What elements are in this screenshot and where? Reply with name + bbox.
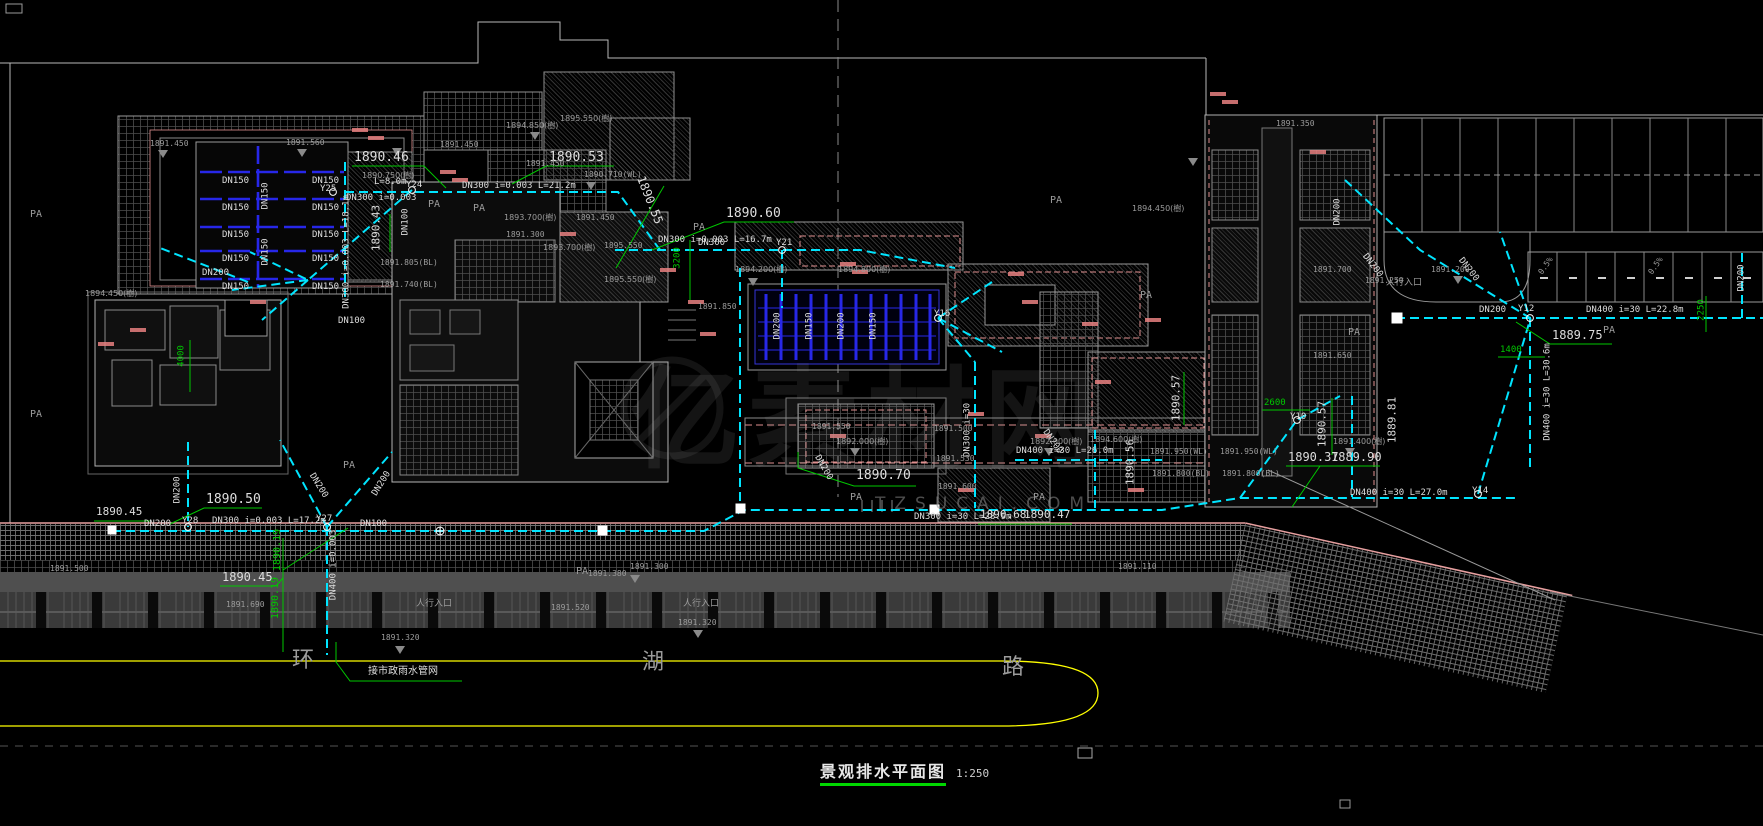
pipe-label: DN150: [222, 204, 249, 213]
watermark-site-text: TZSUCAI.COM: [875, 494, 1093, 514]
elevation-label: 1891.800(BL): [1222, 470, 1280, 478]
pipe-label: DN150: [312, 177, 339, 186]
annotation-label: PA: [428, 200, 440, 210]
elevation-label: 1889.90: [1331, 451, 1382, 463]
elevation-label: 1890.45: [222, 571, 273, 583]
dimension-label: 2250: [1698, 299, 1707, 321]
pipe-label: DN100: [360, 520, 387, 529]
elevation-label: 1891.450: [440, 141, 479, 149]
annotation-label: PA: [850, 493, 862, 503]
elevation-label: 1893.700(樹): [543, 244, 595, 252]
elevation-label: 1891.110: [1118, 563, 1157, 571]
elevation-label: 1895.550: [604, 242, 643, 250]
elevation-label: 1891.200: [1431, 266, 1470, 274]
elevation-label: 1890.43: [371, 205, 382, 251]
elevation-label: 1891.740(BL): [380, 281, 438, 289]
elevation-label: 1890.750(樹): [362, 172, 414, 180]
annotation-label: PA: [30, 210, 42, 220]
annotation-label: 人行入口: [1386, 279, 1422, 288]
pipe-label: DN200: [307, 472, 329, 500]
pipe-label: DN150: [222, 255, 249, 264]
node-label: Y24: [406, 181, 422, 190]
pipe-label: DN150: [262, 182, 271, 209]
pipe-label: DN150: [222, 283, 249, 292]
annotation-label: PA: [30, 410, 42, 420]
elevation-label: 1891.450: [576, 214, 615, 222]
elevation-label: 1890.46: [354, 151, 409, 164]
drawing-title: 景观排水平面图: [820, 762, 946, 786]
elevation-label: 1890.50: [206, 493, 261, 506]
elevation-label: 1890.19: [273, 529, 283, 571]
elevation-label: 1891.320: [678, 619, 717, 627]
pipe-label: DN300 i=0.003 L=18.1m: [343, 195, 352, 309]
node-label: Y21: [776, 239, 792, 248]
pipe-label: DN200: [174, 476, 183, 503]
pipe-label: DN200: [202, 269, 229, 278]
elevation-label: 1890.56: [1125, 439, 1136, 485]
elevation-label: 1890.60: [726, 207, 781, 220]
annotation-label: PA: [693, 223, 705, 233]
drawing-title-block: 景观排水平面图1:250: [820, 758, 989, 782]
annotation-label: PA: [1050, 196, 1062, 206]
annotation-label: 人行入口: [416, 600, 452, 609]
annotation-label: PA: [1140, 291, 1152, 301]
annotation-label: 接市政雨水管网: [368, 667, 438, 677]
dimension-label: 3200: [674, 247, 683, 269]
pipe-label: DN200: [1479, 306, 1506, 315]
dimension-label: 1400: [1500, 346, 1522, 355]
pipe-label: DN150: [312, 231, 339, 240]
elevation-label: 1894.850(樹): [506, 122, 558, 130]
elevation-label: 1889.81: [1387, 397, 1398, 443]
elevation-label: 1891.800(BL): [1152, 470, 1210, 478]
slope-label: 0.5%: [1537, 256, 1555, 276]
pipe-label: DN200: [1738, 264, 1747, 291]
pipe-label: DN300 i=0.003 L=17.2m: [212, 517, 326, 526]
elevation-label: 1891.850: [698, 303, 737, 311]
dimension-label: 4000: [178, 345, 187, 367]
pipe-label: DN300 i=0.003 L=21.2m: [462, 182, 576, 191]
pipe-label: DN400 i=30 L=22.8m: [1586, 306, 1684, 315]
drawing-scale: 1:250: [956, 767, 989, 780]
elevation-label: 1889.75: [1552, 329, 1603, 341]
pipe-label: DN300 i=0.003: [346, 194, 416, 203]
pipe-label: DN150: [222, 177, 249, 186]
pipe-label: DN150: [222, 231, 249, 240]
elevation-label: 1894.450(樹): [1132, 205, 1184, 213]
pipe-label: DN400 i=0.003: [330, 530, 339, 600]
elevation-label: 1891.450: [526, 160, 565, 168]
pipe-label: DN150: [262, 238, 271, 265]
elevation-label: 1890.45: [96, 506, 142, 517]
elevation-label: 1891.300: [630, 563, 669, 571]
elevation-label: 1891.805(BL): [380, 259, 438, 267]
pipe-label: DN100: [402, 208, 411, 235]
elevation-label: 1890.19: [271, 577, 281, 619]
elevation-label: 1891.400(樹): [1333, 438, 1385, 446]
elevation-label: 1891.950(WL): [1220, 448, 1278, 456]
pipe-label: DN150: [312, 255, 339, 264]
node-label: Y25: [320, 185, 336, 194]
pipe-label: DN200: [144, 520, 171, 529]
annotation-label: PA: [576, 567, 588, 577]
elevation-label: 1891.320: [381, 634, 420, 642]
node-label: Y27: [316, 515, 332, 524]
pipe-label: DN300: [698, 239, 725, 248]
pipe-label: DN150: [312, 204, 339, 213]
elevation-label: 1891.650: [1313, 352, 1352, 360]
elevation-label: 1894.200(樹): [735, 266, 787, 274]
elevation-label: 1893.700(樹): [504, 214, 556, 222]
annotation-label: 环: [292, 650, 314, 672]
watermark-logo-text: 亿素材网: [630, 330, 1102, 490]
pipe-label: DN200: [371, 470, 393, 498]
elevation-label: 1890.57: [1317, 401, 1328, 447]
elevation-label: 1891.300: [506, 231, 545, 239]
annotation-label: PA: [1348, 328, 1360, 338]
dimension-label: 2600: [1264, 399, 1286, 408]
pipe-label: DN100: [338, 317, 365, 326]
elevation-label: 1891.560: [286, 139, 325, 147]
annotation-label: PA: [1603, 326, 1615, 336]
node-label: Y14: [1472, 487, 1488, 496]
annotation-label: 路: [1002, 657, 1024, 679]
elevation-label: 1895.550(樹): [604, 276, 656, 284]
node-label: Y10: [1290, 413, 1306, 422]
elevation-label: 1891.500: [50, 565, 89, 573]
annotation-label: PA: [343, 461, 355, 471]
elevation-label: 1894.800(樹): [838, 266, 890, 274]
elevation-label: 1895.550(樹): [560, 115, 612, 123]
cad-drawing-viewport[interactable]: DN300 i=0.003 L=21.2mDN300 i=0.003 L=16.…: [0, 0, 1763, 826]
elevation-label: 1890.710(WL): [584, 171, 642, 179]
elevation-label: 1890.55: [635, 174, 665, 225]
elevation-label: 1891.380: [588, 570, 627, 578]
pipe-label: DN200: [1334, 198, 1343, 225]
slope-label: 0.5%: [1647, 256, 1665, 276]
elevation-label: 1891.520: [551, 604, 590, 612]
annotation-label: PA: [473, 204, 485, 214]
node-label: Y12: [1518, 305, 1534, 314]
pipe-label: DN150: [312, 283, 339, 292]
annotation-label: 湖: [642, 652, 664, 674]
elevation-label: 1891.690: [226, 601, 265, 609]
elevation-label: 1891.950(WL): [1150, 448, 1208, 456]
elevation-label: 1891.700: [1313, 266, 1352, 274]
node-label: Y28: [182, 517, 198, 526]
elevation-label: 1891.450: [150, 140, 189, 148]
elevation-label: 1894.450(樹): [85, 290, 137, 298]
elevation-label: 1890.57: [1171, 375, 1182, 421]
pipe-label: DN400 i=30 L=30.6m: [1544, 343, 1553, 441]
elevation-label: 1891.350: [1276, 120, 1315, 128]
pipe-label: DN400 i=30 L=27.0m: [1350, 489, 1448, 498]
node-label: Y16: [934, 310, 950, 319]
annotation-label: 人行入口: [683, 600, 719, 609]
